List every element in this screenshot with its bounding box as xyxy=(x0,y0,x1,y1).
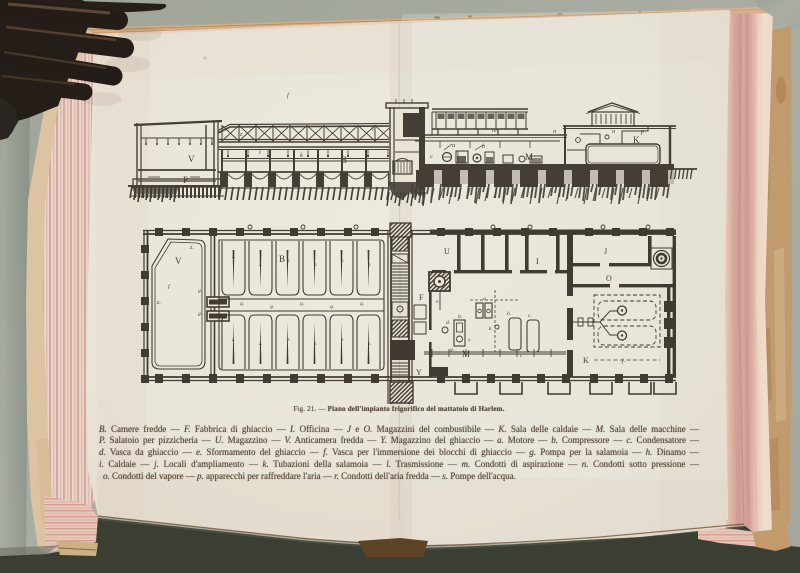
svg-text:c: c xyxy=(430,153,433,160)
svg-text:e.: e. xyxy=(436,299,440,305)
svg-text:z.: z. xyxy=(286,337,291,343)
svg-text:g.: g. xyxy=(198,311,202,317)
svg-text:q.: q. xyxy=(300,301,304,307)
svg-text:q.: q. xyxy=(330,304,334,310)
svg-text:c.: c. xyxy=(528,313,532,319)
svg-text:V: V xyxy=(175,256,182,266)
svg-text:i: i xyxy=(259,149,261,156)
svg-text:s.: s. xyxy=(468,337,472,343)
svg-text:l.: l. xyxy=(520,353,523,359)
svg-text:q.: q. xyxy=(270,304,274,310)
svg-text:U: U xyxy=(444,247,450,256)
svg-text:q.: q. xyxy=(240,301,244,307)
svg-text:Y: Y xyxy=(416,368,422,377)
svg-text:z.: z. xyxy=(367,341,372,347)
svg-text:z.: z. xyxy=(313,262,318,268)
svg-text:a: a xyxy=(452,142,455,149)
svg-text:B: B xyxy=(341,155,347,165)
svg-text:z: z xyxy=(239,131,243,138)
svg-text:z.: z. xyxy=(340,258,345,264)
svg-text:M: M xyxy=(525,152,533,162)
svg-text:z.: z. xyxy=(231,337,236,343)
svg-text:n: n xyxy=(553,128,556,135)
svg-text:f.: f. xyxy=(168,283,171,290)
svg-text:O: O xyxy=(606,274,612,283)
svg-text:z.: z. xyxy=(258,341,263,347)
svg-text:a.: a. xyxy=(483,296,487,302)
svg-text:P: P xyxy=(183,175,188,185)
svg-text:l: l xyxy=(372,126,374,133)
svg-text:z.: z. xyxy=(156,300,161,306)
svg-text:I: I xyxy=(536,257,539,266)
svg-text:V: V xyxy=(188,154,195,164)
svg-text:z.: z. xyxy=(258,262,263,268)
svg-text:g.: g. xyxy=(198,288,202,294)
svg-text:K: K xyxy=(633,135,640,145)
svg-text:h.: h. xyxy=(458,314,462,320)
svg-text:K: K xyxy=(583,356,589,365)
svg-text:j.: j. xyxy=(621,358,625,364)
svg-text:d.: d. xyxy=(446,320,450,326)
svg-text:z.: z. xyxy=(231,254,236,260)
svg-text:m: m xyxy=(492,127,497,134)
svg-text:z.: z. xyxy=(313,341,318,347)
svg-text:k.: k. xyxy=(489,326,493,332)
svg-text:b.: b. xyxy=(507,311,511,317)
svg-text:z.: z. xyxy=(367,262,372,268)
svg-text:k: k xyxy=(300,152,303,159)
svg-text:z.: z. xyxy=(286,258,291,264)
svg-text:z.: z. xyxy=(340,337,345,343)
svg-text:B: B xyxy=(279,254,285,264)
svg-text:q.: q. xyxy=(360,301,364,307)
svg-text:g.: g. xyxy=(450,347,454,353)
svg-text:z.: z. xyxy=(189,245,194,251)
svg-text:J: J xyxy=(604,247,607,256)
svg-text:F: F xyxy=(419,293,424,302)
